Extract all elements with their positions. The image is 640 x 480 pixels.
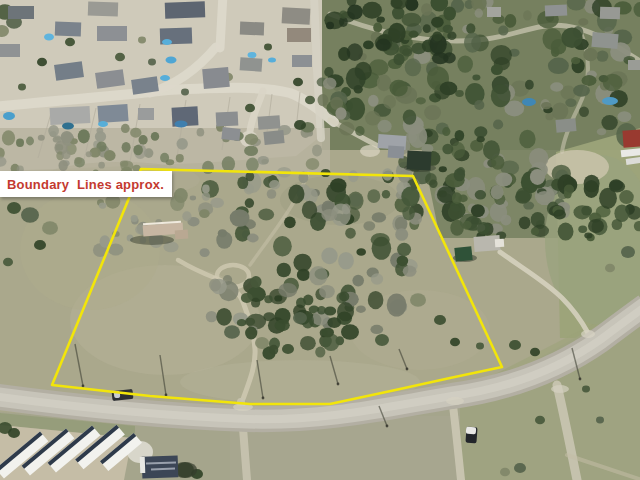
tree: [335, 107, 346, 119]
tree: [246, 158, 259, 172]
tree: [326, 22, 334, 29]
tree: [356, 248, 366, 256]
tree: [269, 345, 278, 355]
tree: [416, 97, 426, 104]
tree: [515, 190, 531, 203]
tree: [37, 58, 47, 67]
tree: [450, 220, 464, 236]
tree: [501, 214, 512, 225]
house-roof: [454, 246, 472, 262]
tree: [251, 298, 260, 308]
street: [220, 0, 223, 48]
tree: [309, 266, 328, 285]
house-roof: [282, 7, 311, 24]
tree: [347, 43, 363, 61]
tree: [120, 161, 128, 167]
tree: [477, 222, 490, 235]
tree: [341, 324, 359, 339]
tree: [614, 204, 629, 222]
tree: [337, 302, 354, 321]
house-roof: [55, 22, 81, 37]
tree: [410, 293, 426, 307]
tree: [294, 120, 306, 130]
tree: [97, 127, 104, 133]
house-roof: [240, 57, 263, 72]
tree: [338, 252, 354, 270]
tree: [65, 38, 75, 47]
house-roof: [175, 230, 189, 240]
pool: [3, 112, 15, 120]
tree: [561, 28, 582, 49]
house-roof: [216, 111, 239, 126]
tree: [530, 348, 540, 357]
tree: [619, 190, 634, 204]
tree: [282, 344, 294, 354]
tree: [442, 127, 450, 136]
house-roof: [495, 239, 505, 248]
tree: [181, 89, 189, 96]
tree: [477, 136, 485, 142]
tree: [476, 343, 484, 350]
tree: [269, 180, 280, 189]
tree: [491, 155, 504, 170]
tree: [319, 285, 335, 298]
pool: [62, 123, 74, 130]
tree: [402, 13, 422, 27]
pavement-pad: [581, 330, 595, 338]
tree: [442, 144, 453, 155]
tree: [345, 228, 356, 239]
tree: [387, 293, 407, 316]
tree: [531, 228, 539, 235]
tree: [382, 190, 390, 199]
house-roof: [487, 7, 501, 17]
tree: [588, 219, 604, 233]
tree: [62, 150, 71, 159]
tree: [293, 312, 307, 324]
tree: [429, 180, 437, 188]
tree: [48, 125, 59, 137]
tree: [491, 84, 511, 107]
tree: [529, 148, 549, 168]
tree: [423, 24, 431, 33]
house-roof: [221, 127, 240, 141]
tree: [395, 228, 408, 241]
tree: [245, 327, 257, 340]
tree: [197, 128, 205, 137]
tree: [202, 185, 210, 194]
house-roof: [97, 104, 128, 123]
house-roof: [240, 22, 264, 36]
tree: [200, 248, 210, 257]
house-roof: [287, 28, 311, 42]
pole-base: [262, 397, 265, 400]
house-roof: [140, 457, 146, 473]
tree: [371, 273, 383, 285]
tree: [397, 255, 409, 266]
tree: [475, 9, 483, 18]
tree: [104, 150, 116, 161]
tree: [339, 10, 348, 18]
tree: [505, 14, 517, 28]
pool: [602, 97, 618, 105]
tree: [558, 223, 574, 241]
house-roof: [622, 129, 640, 147]
house-roof: [202, 67, 230, 89]
tree: [305, 96, 315, 105]
tree: [475, 190, 486, 200]
tree: [7, 202, 21, 214]
tree: [224, 325, 240, 339]
house-roof: [555, 118, 576, 133]
house-roof: [388, 145, 405, 158]
tree: [424, 105, 441, 120]
tree: [59, 160, 68, 171]
tree: [491, 64, 503, 75]
tree: [432, 31, 442, 41]
tree: [273, 236, 292, 256]
tree: [459, 195, 468, 203]
tree: [348, 170, 358, 182]
tree: [599, 188, 617, 209]
pool: [162, 39, 172, 45]
tree: [621, 246, 635, 258]
tree: [601, 115, 617, 130]
pole-base: [337, 383, 340, 386]
tree: [541, 102, 551, 109]
tree: [363, 221, 375, 231]
tree: [519, 130, 535, 148]
boundary-label: Boundary Lines approx.: [0, 171, 172, 197]
tree: [383, 95, 396, 109]
tree: [26, 137, 34, 146]
house-roof: [8, 6, 34, 19]
pool: [522, 98, 536, 106]
tree: [222, 156, 235, 171]
tree: [373, 22, 382, 32]
tree: [596, 50, 608, 61]
tree: [578, 226, 587, 233]
tree: [297, 269, 310, 281]
tree: [440, 82, 458, 96]
tree: [466, 23, 475, 34]
tree: [293, 254, 311, 272]
tree: [535, 416, 545, 425]
tree: [321, 209, 337, 221]
tree: [133, 145, 143, 155]
tree: [474, 126, 487, 137]
tree: [431, 17, 444, 28]
tree: [261, 159, 268, 164]
tree: [278, 283, 297, 298]
tree: [471, 204, 485, 217]
tree: [3, 258, 13, 267]
tree: [199, 209, 210, 218]
tree: [42, 221, 58, 235]
tree: [322, 328, 334, 338]
tree: [176, 154, 184, 162]
tree: [244, 145, 258, 156]
pole-base: [406, 368, 409, 371]
tree: [367, 189, 380, 203]
tree: [362, 2, 382, 19]
tree: [2, 130, 15, 145]
tree: [401, 187, 419, 207]
tree: [53, 136, 62, 142]
tree: [530, 169, 545, 185]
house-roof: [258, 115, 281, 130]
tree: [34, 240, 46, 250]
house-roof: [263, 130, 284, 145]
tree: [617, 111, 631, 122]
tree: [264, 295, 272, 303]
tree: [293, 78, 303, 87]
tree: [302, 201, 317, 219]
tree: [565, 99, 576, 107]
pavement-pad: [551, 385, 569, 393]
tree: [202, 192, 210, 200]
tree: [356, 306, 366, 313]
tree: [421, 3, 432, 16]
tree: [300, 336, 316, 350]
tree: [472, 74, 480, 80]
tree: [439, 166, 447, 172]
tree: [312, 145, 322, 157]
tree: [61, 131, 73, 143]
house-roof: [600, 7, 620, 20]
pool: [44, 34, 54, 41]
tree: [355, 126, 364, 136]
house-roof: [407, 150, 432, 170]
house-roof: [591, 32, 618, 49]
tree: [372, 212, 386, 222]
tree: [525, 80, 534, 90]
tree: [377, 75, 391, 92]
tree: [264, 44, 272, 51]
tree-shadow: [130, 235, 174, 245]
pool: [248, 52, 257, 58]
tree: [347, 4, 363, 19]
tree: [216, 308, 232, 326]
tree: [393, 54, 404, 66]
tree: [583, 48, 597, 61]
pool: [166, 57, 177, 64]
tree: [121, 124, 130, 133]
tree: [609, 179, 623, 191]
tree: [451, 142, 465, 159]
house-roof: [88, 1, 118, 16]
tree: [397, 243, 411, 256]
tree: [597, 128, 607, 135]
tree: [605, 264, 615, 273]
tree: [245, 104, 255, 113]
tree: [245, 134, 259, 145]
house-roof: [545, 4, 568, 16]
tree: [255, 337, 269, 349]
tree: [582, 75, 597, 86]
pool: [268, 58, 276, 63]
tree: [250, 276, 261, 288]
pole-base: [386, 425, 389, 428]
tree: [378, 120, 392, 133]
tree: [584, 175, 600, 193]
tree: [564, 185, 574, 195]
tree: [352, 275, 364, 287]
tree: [160, 153, 169, 163]
tree: [450, 338, 460, 347]
pool: [175, 121, 188, 128]
tree: [495, 173, 512, 187]
pool: [98, 121, 108, 127]
tree: [241, 293, 253, 303]
tree: [376, 39, 391, 51]
tree: [375, 334, 389, 346]
tree: [190, 196, 196, 201]
tree: [500, 468, 510, 477]
tree: [122, 142, 131, 152]
tree: [321, 248, 337, 265]
tree: [86, 151, 92, 157]
tree: [18, 84, 26, 91]
tree: [138, 37, 146, 44]
tree: [582, 386, 590, 393]
tree: [403, 266, 417, 277]
tree: [519, 216, 531, 229]
tree: [8, 428, 20, 438]
tree: [277, 263, 291, 278]
tree: [550, 82, 563, 91]
tree: [323, 78, 337, 90]
tree: [389, 80, 407, 97]
tree: [327, 317, 341, 328]
house-roof: [97, 26, 127, 41]
tree: [177, 138, 188, 150]
tree: [363, 41, 374, 50]
tree: [554, 209, 566, 219]
tree: [370, 325, 383, 334]
tree: [209, 279, 221, 292]
tree: [603, 74, 623, 91]
tree: [368, 291, 384, 309]
tree: [548, 58, 569, 75]
tree: [579, 107, 589, 117]
tree: [454, 168, 465, 181]
tree: [230, 209, 250, 226]
tree: [98, 162, 105, 169]
tree: [99, 203, 107, 209]
tree: [571, 57, 580, 64]
tree: [247, 234, 259, 243]
tree: [245, 198, 254, 208]
tree: [372, 237, 392, 260]
tree: [498, 26, 508, 36]
house-roof: [0, 44, 20, 57]
tree: [578, 18, 588, 25]
tree: [267, 189, 277, 199]
tree: [523, 10, 532, 20]
tree: [339, 292, 349, 302]
tree: [584, 233, 592, 239]
tree: [368, 95, 379, 107]
tree: [369, 59, 389, 75]
house-roof: [50, 106, 91, 125]
tree: [16, 139, 24, 147]
aerial-scene-svg: [0, 0, 640, 480]
tree: [339, 122, 354, 136]
tree: [306, 158, 320, 170]
house-roof: [165, 1, 206, 18]
tree: [402, 206, 414, 220]
tree: [573, 85, 590, 97]
tree: [324, 67, 333, 77]
tree: [377, 16, 385, 22]
tree: [365, 111, 380, 126]
tree: [78, 129, 90, 143]
tree: [182, 211, 191, 221]
tree: [130, 128, 141, 138]
tree: [139, 135, 148, 145]
vehicle: [466, 427, 476, 435]
tree: [284, 216, 296, 228]
tree: [403, 110, 417, 125]
tree: [463, 221, 472, 229]
tree: [75, 157, 82, 164]
tree: [443, 25, 453, 33]
tree: [443, 6, 456, 20]
tree: [275, 319, 290, 331]
pavement-pad: [360, 145, 380, 157]
pavement-pad: [446, 397, 464, 405]
pole-base: [82, 385, 85, 388]
pool: [160, 75, 170, 81]
tree: [509, 340, 521, 350]
tree: [448, 205, 462, 220]
house-roof: [142, 455, 179, 478]
tree: [21, 207, 39, 222]
tree: [258, 209, 274, 221]
tree: [491, 185, 504, 200]
house-roof: [628, 60, 640, 70]
tree: [457, 55, 473, 72]
tree: [288, 184, 304, 203]
tree: [434, 315, 446, 325]
tree: [405, 58, 421, 76]
tree: [514, 463, 526, 473]
tree: [318, 94, 329, 106]
aerial-photo: Boundary Lines approx.: [0, 0, 640, 480]
tree: [148, 59, 156, 66]
tree: [151, 132, 159, 141]
tree: [245, 318, 255, 326]
tree: [537, 191, 552, 203]
tree: [464, 32, 481, 52]
tree: [346, 68, 366, 90]
tree: [315, 347, 325, 358]
pole-base: [579, 378, 582, 381]
tree: [596, 417, 604, 424]
tree: [474, 100, 484, 110]
tree: [115, 53, 125, 62]
tree: [206, 311, 217, 322]
tree: [432, 52, 449, 64]
tree: [408, 125, 427, 148]
tree: [38, 135, 45, 141]
tree: [388, 23, 406, 43]
tree: [174, 188, 188, 203]
tree: [402, 48, 412, 56]
house-roof: [138, 108, 154, 120]
house-roof: [292, 55, 312, 67]
